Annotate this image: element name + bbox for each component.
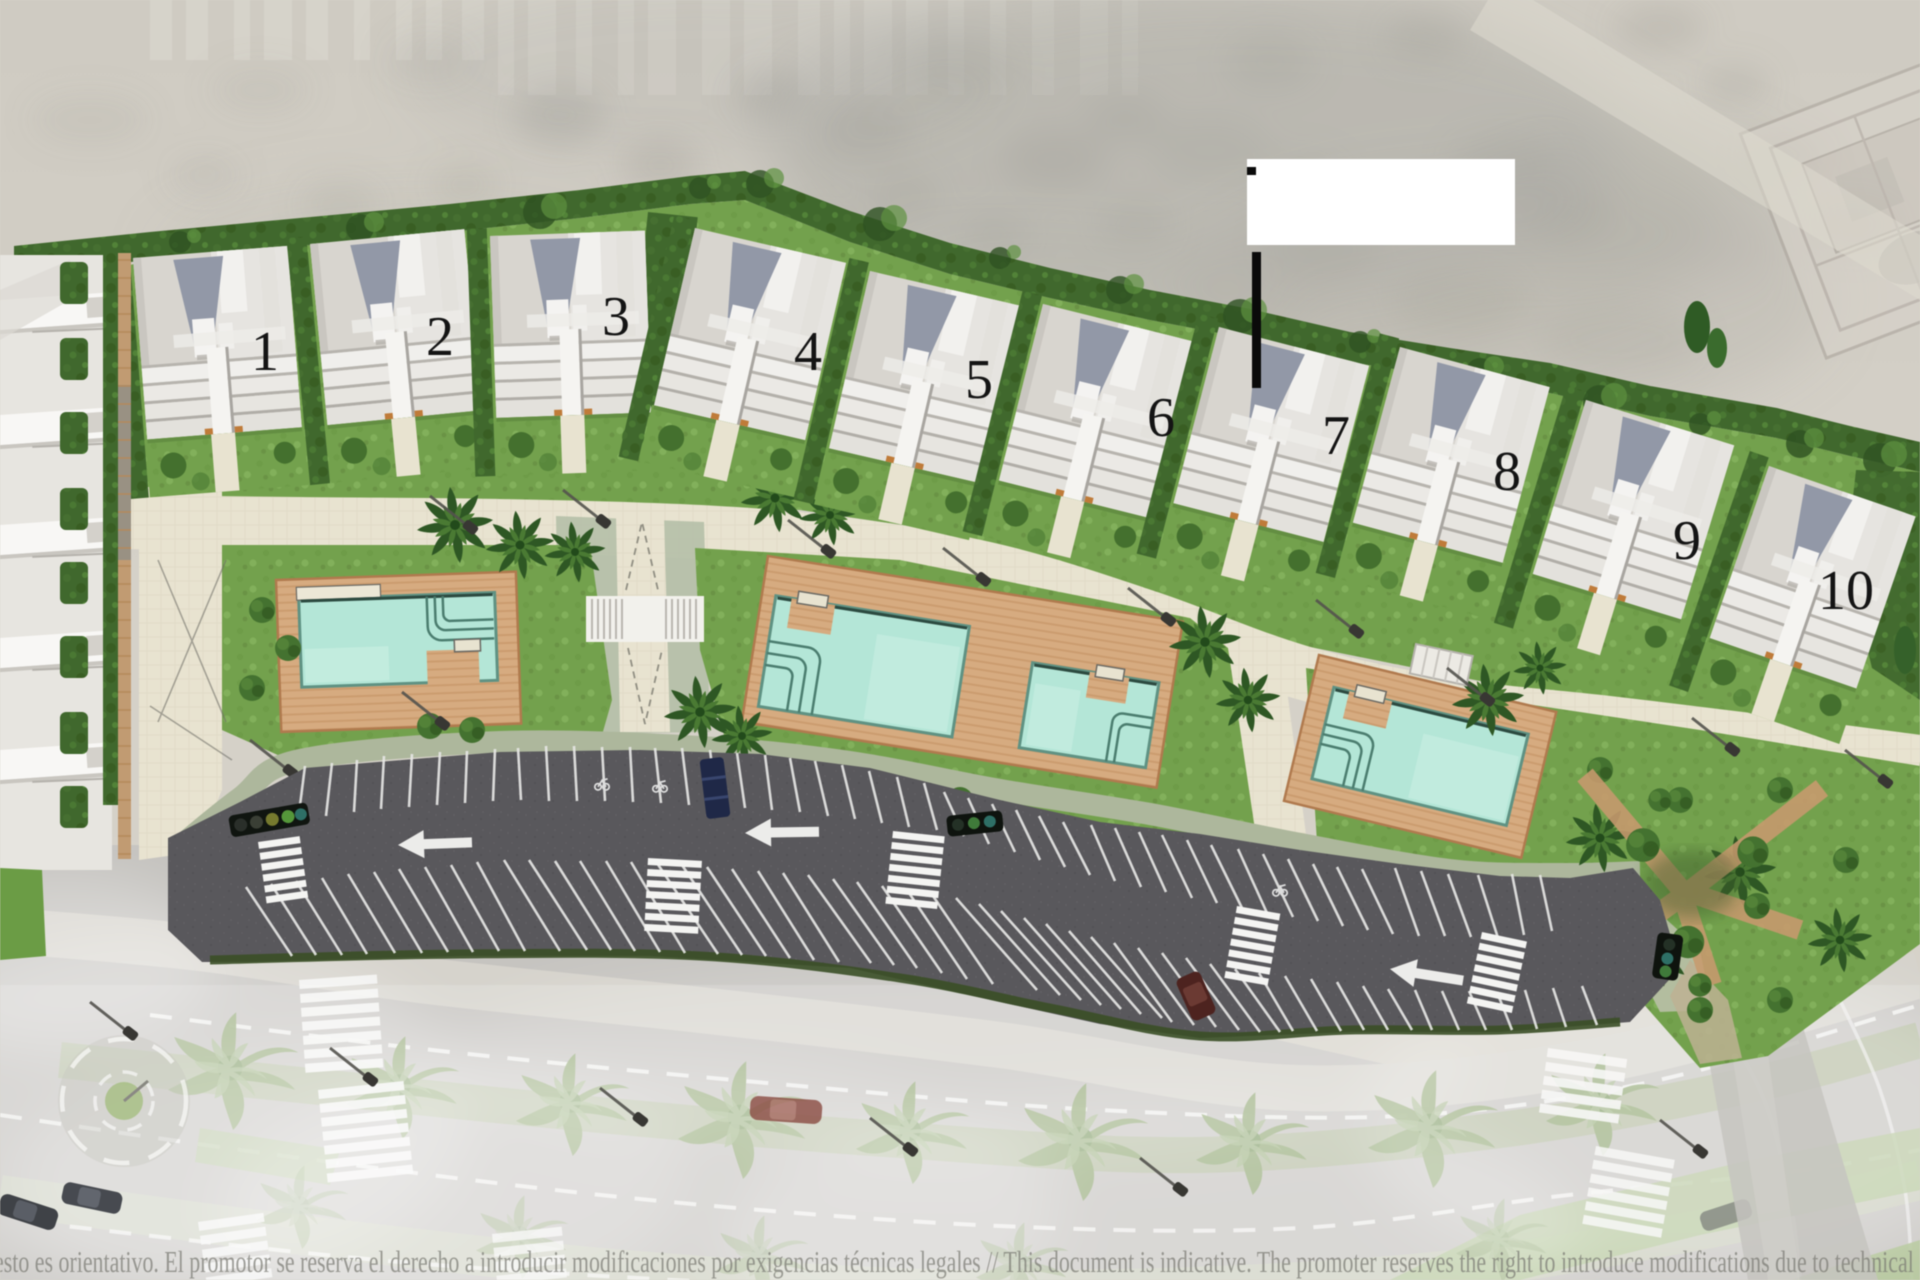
svg-text:2: 2 [426,306,454,368]
svg-text:10: 10 [1818,560,1874,622]
svg-text:6: 6 [1147,387,1175,449]
svg-text:8: 8 [1493,441,1521,503]
svg-text:3: 3 [602,286,630,348]
svg-text:esto es orientativo. El promot: esto es orientativo. El promotor se rese… [0,1244,1920,1279]
svg-text:5: 5 [965,349,993,411]
svg-text:9: 9 [1673,510,1701,572]
svg-text:1: 1 [251,321,279,383]
svg-text:7: 7 [1322,405,1350,467]
svg-text:4: 4 [794,321,822,383]
